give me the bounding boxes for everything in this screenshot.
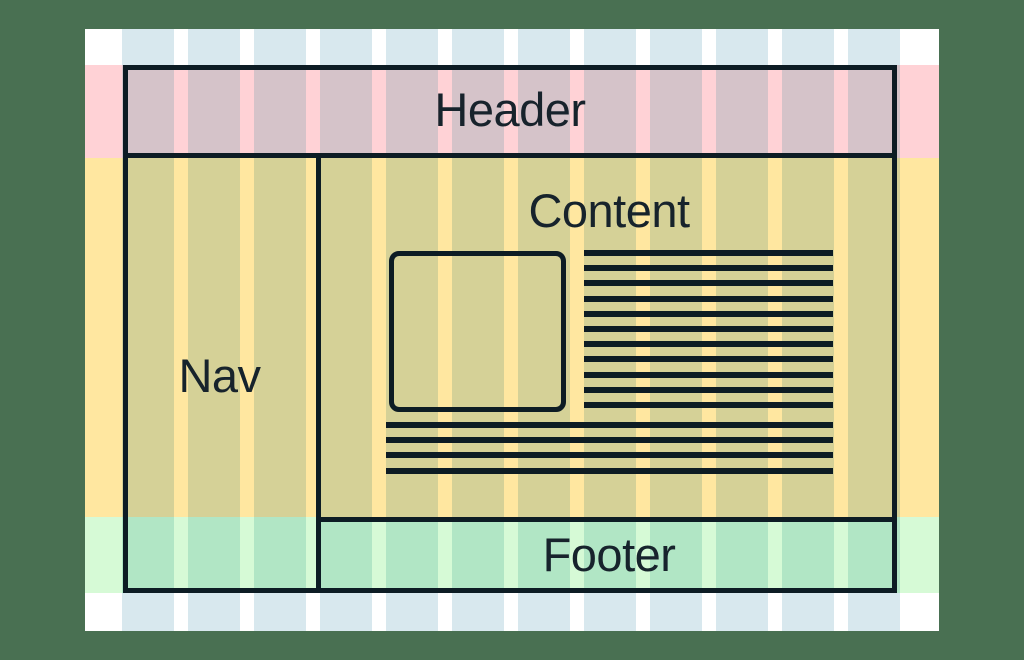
content-label: Content [528, 183, 689, 238]
text-line [584, 387, 833, 393]
text-line [584, 341, 833, 347]
footer-label: Footer [543, 527, 676, 582]
top-margin-band [85, 29, 939, 65]
header-label: Header [434, 82, 585, 137]
text-line [386, 452, 833, 458]
nav-region: Nav [123, 158, 316, 593]
text-line [584, 372, 833, 378]
text-line [584, 326, 833, 332]
text-line [584, 356, 833, 362]
text-placeholder-lines-bottom [386, 422, 833, 477]
text-line [584, 280, 833, 286]
text-line [584, 296, 833, 302]
image-placeholder-box [389, 251, 566, 412]
text-line [584, 250, 833, 256]
diagram-canvas: Header Nav Content Footer [0, 0, 1024, 660]
text-line [584, 402, 833, 408]
footer-region: Footer [321, 521, 897, 588]
bottom-margin-band [85, 593, 939, 631]
text-line [584, 311, 833, 317]
grid-columns-overlay [122, 593, 900, 631]
text-line [386, 437, 833, 443]
grid-columns-overlay [122, 29, 900, 65]
text-placeholder-lines-right [584, 250, 833, 420]
text-line [584, 265, 833, 271]
nav-label: Nav [178, 348, 260, 403]
text-line [386, 468, 833, 474]
header-region: Header [123, 65, 897, 153]
text-line [386, 422, 833, 428]
page-mockup: Header Nav Content Footer [85, 29, 939, 631]
content-region: Content [321, 158, 897, 238]
